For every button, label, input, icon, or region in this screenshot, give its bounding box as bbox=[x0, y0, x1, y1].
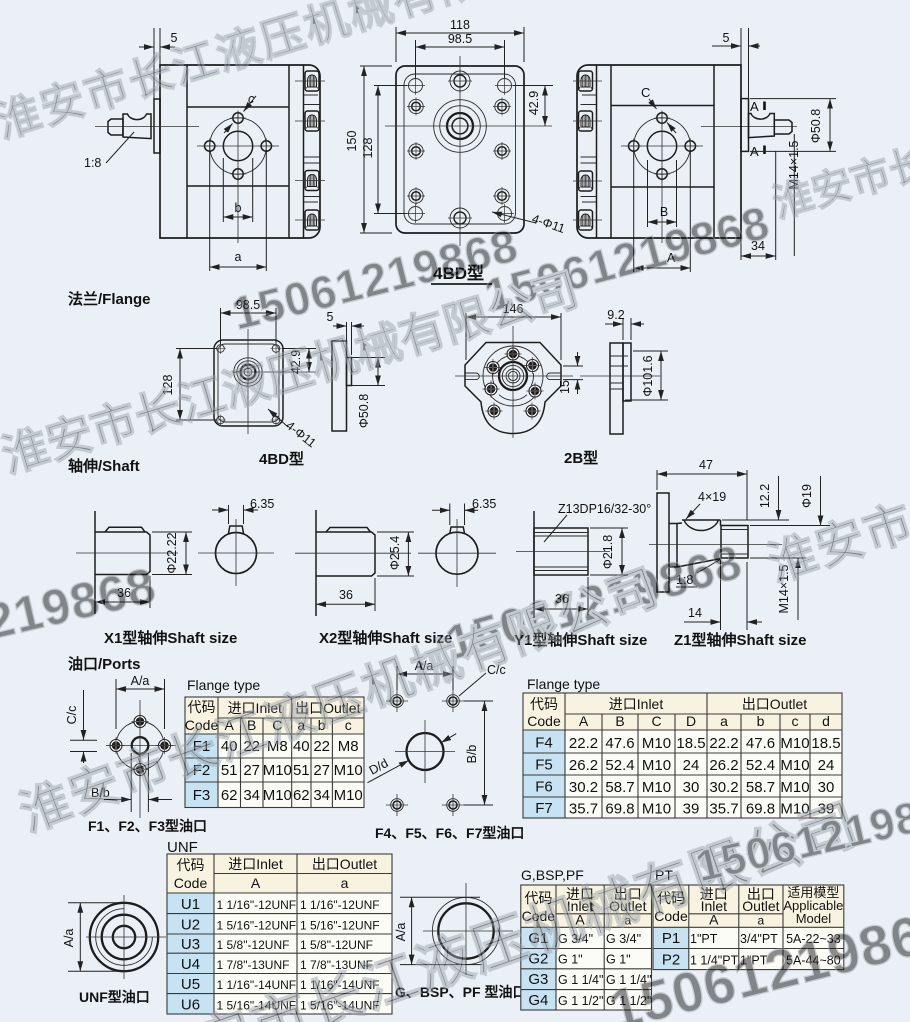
svg-text:6.35: 6.35 bbox=[250, 497, 274, 511]
svg-text:Code: Code bbox=[174, 875, 208, 891]
svg-text:14: 14 bbox=[688, 606, 702, 620]
svg-text:M10: M10 bbox=[780, 735, 809, 752]
svg-text:M10: M10 bbox=[780, 757, 809, 774]
svg-text:4×19: 4×19 bbox=[698, 490, 726, 504]
svg-text:Φ50.8: Φ50.8 bbox=[809, 109, 823, 143]
svg-text:A: A bbox=[750, 99, 759, 114]
svg-text:Φ19: Φ19 bbox=[800, 484, 814, 508]
svg-text:A: A bbox=[709, 912, 719, 928]
svg-text:Φ21.8: Φ21.8 bbox=[601, 535, 615, 569]
svg-text:M10: M10 bbox=[780, 779, 809, 796]
svg-text:58.7: 58.7 bbox=[605, 779, 634, 796]
svg-text:D: D bbox=[686, 713, 696, 729]
svg-text:A: A bbox=[251, 875, 261, 891]
svg-text:6.35: 6.35 bbox=[472, 497, 496, 511]
svg-text:1 5/8"-12UNF: 1 5/8"-12UNF bbox=[217, 938, 290, 952]
svg-text:F7: F7 bbox=[535, 800, 553, 817]
svg-text:A: A bbox=[579, 713, 589, 729]
svg-text:B: B bbox=[615, 713, 624, 729]
svg-text:69.8: 69.8 bbox=[746, 801, 775, 818]
svg-text:22: 22 bbox=[313, 738, 330, 755]
svg-text:5: 5 bbox=[723, 31, 730, 45]
svg-text:30: 30 bbox=[683, 779, 700, 796]
svg-text:2B型: 2B型 bbox=[564, 449, 598, 467]
svg-text:b: b bbox=[757, 713, 765, 729]
svg-text:Φ25.4: Φ25.4 bbox=[388, 536, 402, 570]
svg-text:58.7: 58.7 bbox=[746, 779, 775, 796]
svg-text:B/b: B/b bbox=[465, 745, 479, 764]
svg-text:a: a bbox=[720, 713, 728, 729]
svg-text:Φ22.22: Φ22.22 bbox=[165, 532, 179, 573]
svg-text:C: C bbox=[651, 713, 661, 729]
svg-text:62: 62 bbox=[293, 787, 310, 804]
svg-text:M10: M10 bbox=[642, 735, 671, 752]
svg-text:M10: M10 bbox=[642, 779, 671, 796]
svg-text:47.6: 47.6 bbox=[746, 735, 775, 752]
svg-text:a: a bbox=[341, 875, 349, 891]
svg-text:98.5: 98.5 bbox=[448, 32, 472, 46]
svg-text:Z1型轴伸Shaft size: Z1型轴伸Shaft size bbox=[674, 631, 807, 649]
svg-text:c: c bbox=[792, 713, 799, 729]
svg-text:C/c: C/c bbox=[65, 706, 79, 725]
svg-text:34: 34 bbox=[243, 787, 260, 804]
svg-text:G 1 1/4": G 1 1/4" bbox=[558, 973, 603, 987]
svg-text:代码: 代码 bbox=[530, 696, 558, 712]
svg-text:M10: M10 bbox=[263, 762, 292, 779]
svg-text:22.2: 22.2 bbox=[569, 735, 598, 752]
svg-text:M10: M10 bbox=[642, 757, 671, 774]
svg-text:15: 15 bbox=[558, 380, 572, 394]
svg-text:代码: 代码 bbox=[188, 699, 216, 715]
svg-text:128: 128 bbox=[361, 138, 375, 159]
svg-text:G,BSP,PF: G,BSP,PF bbox=[521, 867, 584, 883]
svg-text:M10: M10 bbox=[263, 787, 292, 804]
svg-text:30.2: 30.2 bbox=[569, 779, 598, 796]
svg-text:1"PT: 1"PT bbox=[690, 932, 718, 946]
svg-text:U3: U3 bbox=[181, 936, 200, 953]
svg-text:51: 51 bbox=[293, 762, 310, 779]
svg-text:1 5/16"-12UNF: 1 5/16"-12UNF bbox=[300, 919, 380, 933]
svg-text:P1: P1 bbox=[662, 930, 680, 947]
svg-text:U5: U5 bbox=[181, 976, 200, 993]
svg-text:U2: U2 bbox=[181, 917, 200, 934]
svg-text:F5: F5 bbox=[535, 757, 553, 774]
svg-text:M8: M8 bbox=[338, 738, 359, 755]
svg-text:d: d bbox=[822, 713, 830, 729]
svg-text:G4: G4 bbox=[528, 992, 548, 1009]
svg-text:4BD型: 4BD型 bbox=[259, 450, 304, 468]
svg-text:24: 24 bbox=[683, 757, 700, 774]
svg-text:X1型轴伸Shaft size: X1型轴伸Shaft size bbox=[104, 629, 237, 647]
svg-text:代码: 代码 bbox=[177, 857, 205, 873]
svg-text:1 5/16"-12UNF: 1 5/16"-12UNF bbox=[217, 919, 297, 933]
svg-text:26.2: 26.2 bbox=[569, 757, 598, 774]
svg-text:G 1 1/2": G 1 1/2" bbox=[558, 994, 603, 1008]
svg-text:30: 30 bbox=[818, 779, 835, 796]
svg-text:52.4: 52.4 bbox=[746, 757, 775, 774]
svg-text:U1: U1 bbox=[181, 896, 200, 913]
svg-text:F6: F6 bbox=[535, 779, 553, 796]
svg-text:出口Outlet: 出口Outlet bbox=[312, 856, 377, 872]
svg-text:G 1": G 1" bbox=[606, 953, 631, 967]
svg-text:A/a: A/a bbox=[131, 674, 150, 688]
svg-text:39: 39 bbox=[683, 801, 700, 818]
svg-text:M10: M10 bbox=[642, 801, 671, 818]
svg-text:UNF型油口: UNF型油口 bbox=[79, 989, 150, 1005]
svg-text:C: C bbox=[641, 85, 650, 100]
svg-text:进口Inlet: 进口Inlet bbox=[228, 856, 283, 872]
svg-text:1 5/8"-12UNF: 1 5/8"-12UNF bbox=[300, 938, 373, 952]
svg-text:9.2: 9.2 bbox=[607, 308, 624, 322]
svg-text:Code: Code bbox=[527, 713, 561, 729]
svg-text:26.2: 26.2 bbox=[709, 757, 738, 774]
svg-text:62: 62 bbox=[221, 787, 238, 804]
svg-text:Flange type: Flange type bbox=[187, 677, 260, 693]
svg-text:U6: U6 bbox=[181, 997, 200, 1014]
svg-text:M10: M10 bbox=[334, 787, 363, 804]
svg-text:35.7: 35.7 bbox=[709, 801, 738, 818]
svg-text:a: a bbox=[235, 250, 242, 264]
svg-text:F4: F4 bbox=[535, 735, 553, 752]
svg-text:47.6: 47.6 bbox=[605, 735, 634, 752]
svg-text:B: B bbox=[660, 205, 668, 219]
svg-text:进口Inlet: 进口Inlet bbox=[609, 696, 664, 712]
svg-text:34: 34 bbox=[313, 787, 330, 804]
svg-text:1 1/16"-12UNF: 1 1/16"-12UNF bbox=[217, 898, 297, 912]
svg-text:Outlet: Outlet bbox=[742, 898, 779, 914]
svg-text:52.4: 52.4 bbox=[605, 757, 634, 774]
svg-text:a: a bbox=[758, 914, 765, 928]
svg-text:69.8: 69.8 bbox=[605, 801, 634, 818]
svg-text:47: 47 bbox=[699, 458, 713, 472]
svg-text:M10: M10 bbox=[334, 762, 363, 779]
svg-text:27: 27 bbox=[313, 762, 330, 779]
svg-text:Φ50.8: Φ50.8 bbox=[357, 394, 371, 428]
svg-text:c: c bbox=[248, 92, 255, 106]
svg-text:30.2: 30.2 bbox=[709, 779, 738, 796]
svg-text:G3: G3 bbox=[528, 971, 548, 988]
svg-text:1 1/16"-12UNF: 1 1/16"-12UNF bbox=[300, 898, 380, 912]
svg-text:12.2: 12.2 bbox=[758, 484, 772, 508]
svg-text:F4、F5、F6、F7型油口: F4、F5、F6、F7型油口 bbox=[375, 825, 524, 841]
svg-text:24: 24 bbox=[818, 757, 835, 774]
svg-text:150: 150 bbox=[345, 131, 359, 152]
svg-text:F3: F3 bbox=[193, 787, 211, 804]
svg-text:油口/Ports: 油口/Ports bbox=[68, 655, 141, 673]
svg-text:Φ101.6: Φ101.6 bbox=[641, 355, 655, 396]
svg-text:Model: Model bbox=[796, 911, 832, 926]
svg-text:35.7: 35.7 bbox=[569, 801, 598, 818]
svg-text:1:8: 1:8 bbox=[84, 156, 101, 170]
svg-text:1 7/8"-13UNF: 1 7/8"-13UNF bbox=[217, 958, 290, 972]
svg-text:F1、F2、F3型油口: F1、F2、F3型油口 bbox=[88, 818, 207, 834]
svg-text:Z13DP16/32-30°: Z13DP16/32-30° bbox=[558, 502, 651, 516]
svg-text:18.5: 18.5 bbox=[811, 735, 840, 752]
svg-text:法兰/Flange: 法兰/Flange bbox=[68, 290, 151, 308]
svg-text:出口Outlet: 出口Outlet bbox=[742, 696, 807, 712]
svg-text:b: b bbox=[235, 201, 242, 215]
svg-text:18.5: 18.5 bbox=[676, 735, 705, 752]
svg-text:22.2: 22.2 bbox=[709, 735, 738, 752]
svg-text:118: 118 bbox=[450, 18, 470, 32]
svg-text:A/a: A/a bbox=[394, 923, 408, 942]
svg-text:27: 27 bbox=[243, 762, 260, 779]
svg-text:36: 36 bbox=[339, 588, 353, 602]
svg-text:42.9: 42.9 bbox=[527, 91, 541, 115]
svg-text:A/a: A/a bbox=[62, 929, 76, 948]
svg-text:U4: U4 bbox=[181, 956, 200, 973]
svg-text:Flange type: Flange type bbox=[527, 676, 600, 692]
